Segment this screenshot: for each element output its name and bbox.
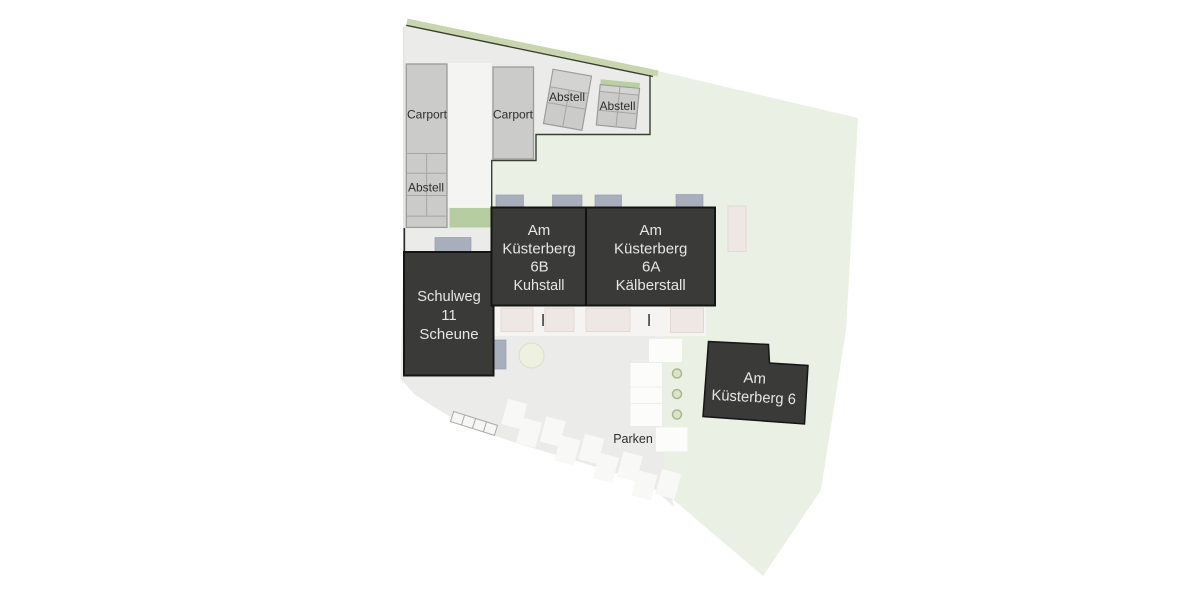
- svg-text:Carport: Carport: [407, 108, 448, 122]
- svg-text:Küsterberg: Küsterberg: [502, 240, 575, 257]
- svg-text:Am: Am: [639, 222, 662, 239]
- svg-text:Am: Am: [528, 222, 551, 239]
- svg-text:Scheune: Scheune: [419, 326, 478, 343]
- svg-text:Am: Am: [743, 369, 766, 387]
- svg-text:Carport: Carport: [493, 108, 534, 122]
- svg-text:Küsterberg: Küsterberg: [614, 240, 687, 257]
- svg-text:Kälberstall: Kälberstall: [616, 277, 686, 294]
- svg-text:6B: 6B: [530, 259, 548, 276]
- svg-text:Schulweg: Schulweg: [417, 288, 481, 305]
- svg-text:Abstell: Abstell: [549, 90, 585, 104]
- svg-text:Parken: Parken: [613, 432, 653, 446]
- svg-text:6A: 6A: [642, 259, 660, 276]
- svg-text:Abstell: Abstell: [408, 181, 444, 195]
- svg-text:11: 11: [441, 307, 457, 324]
- svg-text:Kuhstall: Kuhstall: [514, 277, 565, 294]
- svg-text:Abstell: Abstell: [599, 99, 635, 113]
